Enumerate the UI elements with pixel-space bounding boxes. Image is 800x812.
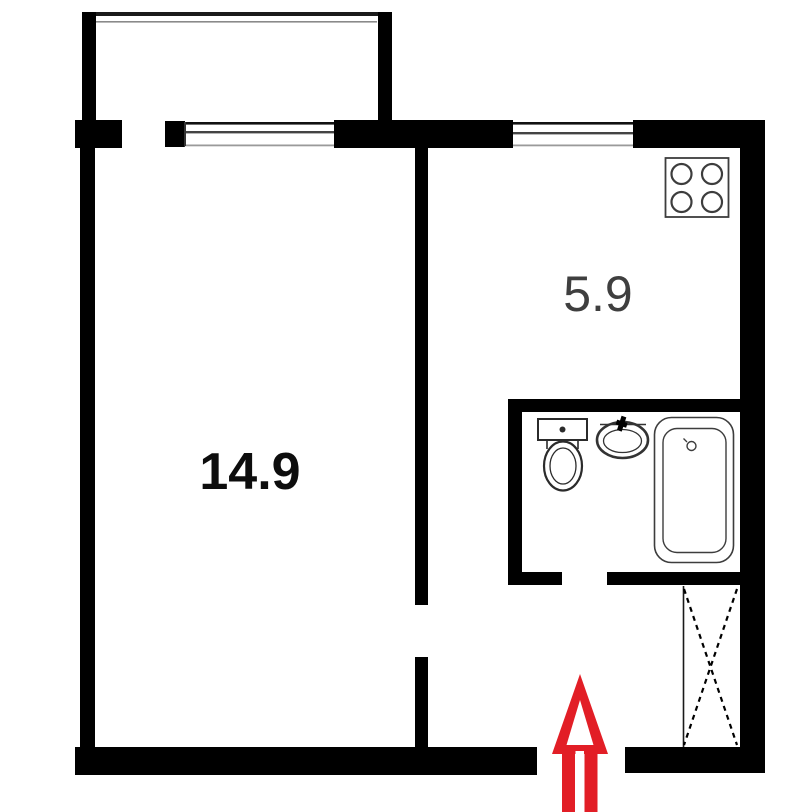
wall-segment	[334, 120, 513, 148]
stove-burner	[672, 164, 692, 184]
window-inner-line	[184, 131, 334, 133]
window-outer-line	[184, 122, 334, 125]
bathtub-icon	[655, 418, 734, 563]
wall-segment	[415, 147, 428, 605]
bathtub-outer	[655, 418, 734, 563]
arrow-shaft-gap	[576, 751, 585, 812]
wall-segment	[740, 120, 765, 773]
stove-icon	[666, 158, 729, 217]
window-sill-line	[513, 145, 633, 147]
living-room-area-label: 14.9	[199, 443, 300, 501]
floor-plan-canvas: 14.9 5.9	[0, 0, 800, 812]
wall-segment	[75, 747, 537, 775]
balcony-railing	[93, 12, 380, 16]
wardrobe-diagonal	[684, 589, 737, 745]
bathtub-drain	[687, 442, 696, 451]
balcony-left-wall	[82, 12, 96, 120]
stove-burner	[702, 192, 722, 212]
wardrobe-hatch	[684, 586, 738, 747]
kitchen-area-label: 5.9	[563, 266, 633, 322]
window-sill-line	[184, 145, 334, 147]
wall-segment	[625, 747, 765, 773]
entrance-arrow-icon	[552, 674, 608, 812]
stove-burner	[672, 192, 692, 212]
stove-burner	[702, 164, 722, 184]
wardrobe-diagonal	[684, 589, 737, 745]
bathroom-top-wall	[508, 399, 740, 412]
wall-segment	[75, 120, 122, 148]
toilet-button	[560, 427, 566, 433]
window-frame-edge	[184, 122, 186, 146]
living-room-window	[184, 122, 334, 146]
window-outer-line	[513, 122, 633, 125]
bathroom-bottom-wall-right	[607, 572, 740, 585]
bathroom-bottom-wall-left	[508, 572, 562, 585]
toilet-icon	[538, 419, 587, 491]
bathtub-inner	[663, 429, 726, 553]
floor-plan: 14.9 5.9	[0, 0, 800, 812]
sink-icon	[597, 415, 648, 458]
balcony-railing-inner-line	[96, 21, 377, 23]
window-inner-line	[513, 132, 633, 134]
arrow-shaft-right	[585, 750, 598, 812]
wall-segment	[165, 121, 185, 147]
wall-segment	[80, 148, 95, 775]
kitchen-window	[513, 122, 633, 146]
bathroom-left-wall	[508, 399, 522, 585]
arrow-shaft-left	[562, 750, 575, 812]
wall-segment	[415, 657, 428, 749]
bathtub-drain-tick	[684, 439, 688, 443]
